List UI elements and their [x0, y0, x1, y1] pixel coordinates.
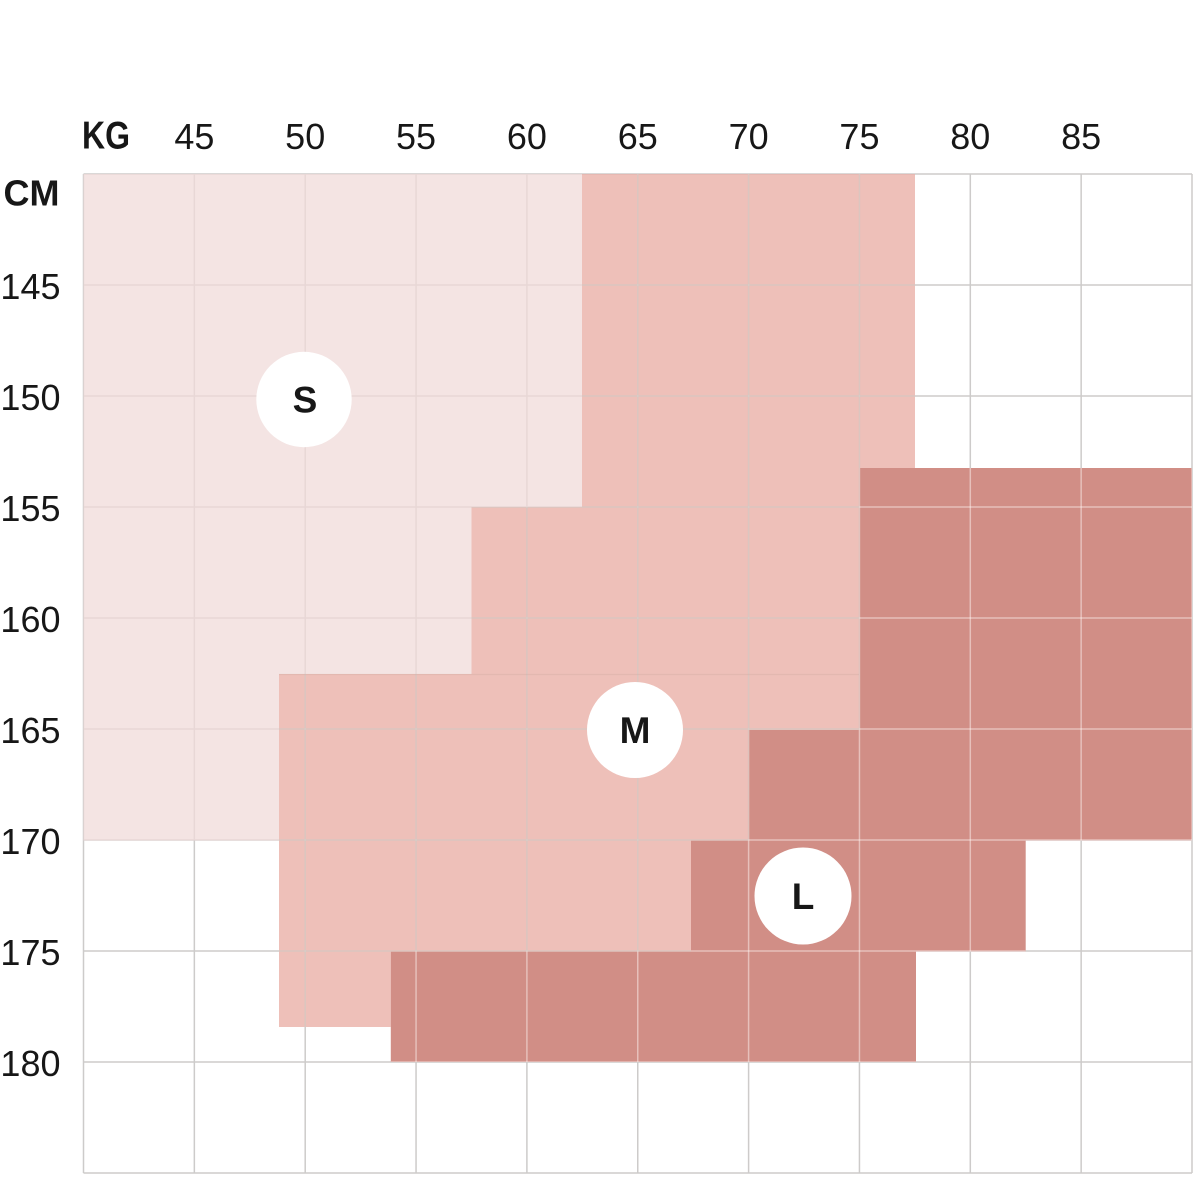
- svg-text:50: 50: [285, 116, 325, 157]
- svg-text:70: 70: [729, 116, 769, 157]
- svg-text:150: 150: [0, 377, 60, 418]
- svg-text:80: 80: [950, 116, 990, 157]
- svg-text:75: 75: [839, 116, 879, 157]
- svg-text:55: 55: [396, 116, 436, 157]
- svg-text:175: 175: [0, 932, 60, 973]
- svg-text:165: 165: [0, 710, 60, 751]
- svg-text:CM: CM: [4, 173, 60, 214]
- svg-text:145: 145: [0, 266, 60, 307]
- svg-text:170: 170: [0, 821, 60, 862]
- svg-text:160: 160: [0, 599, 60, 640]
- svg-text:45: 45: [174, 116, 214, 157]
- svg-text:S: S: [293, 380, 318, 421]
- svg-text:65: 65: [618, 116, 658, 157]
- svg-text:KG: KG: [82, 115, 130, 158]
- svg-text:L: L: [792, 876, 815, 917]
- svg-text:85: 85: [1061, 116, 1101, 157]
- svg-text:60: 60: [507, 116, 547, 157]
- svg-text:155: 155: [0, 488, 60, 529]
- svg-text:180: 180: [0, 1043, 60, 1084]
- svg-text:M: M: [620, 710, 651, 751]
